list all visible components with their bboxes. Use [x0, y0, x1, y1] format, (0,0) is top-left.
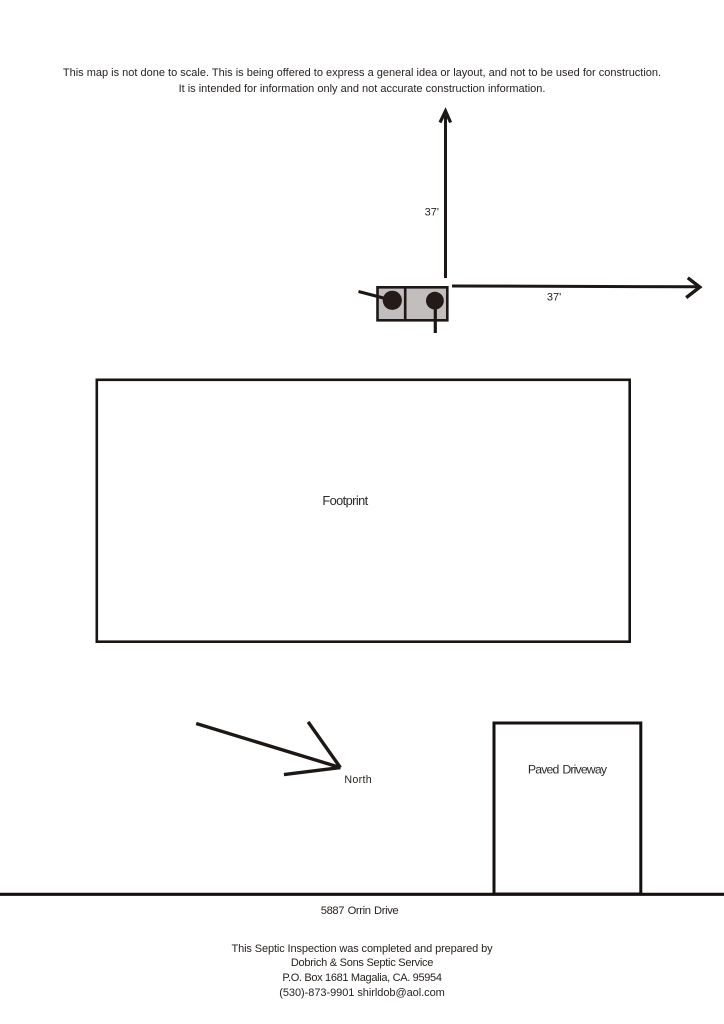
svg-text:5887 Orrin Drive: 5887 Orrin Drive [321, 905, 399, 917]
svg-text:Footprint: Footprint [322, 493, 368, 508]
svg-text:37': 37' [547, 292, 561, 304]
svg-text:37': 37' [425, 207, 439, 219]
svg-text:North: North [344, 774, 372, 786]
svg-text:Paved Driveway: Paved Driveway [528, 763, 608, 777]
